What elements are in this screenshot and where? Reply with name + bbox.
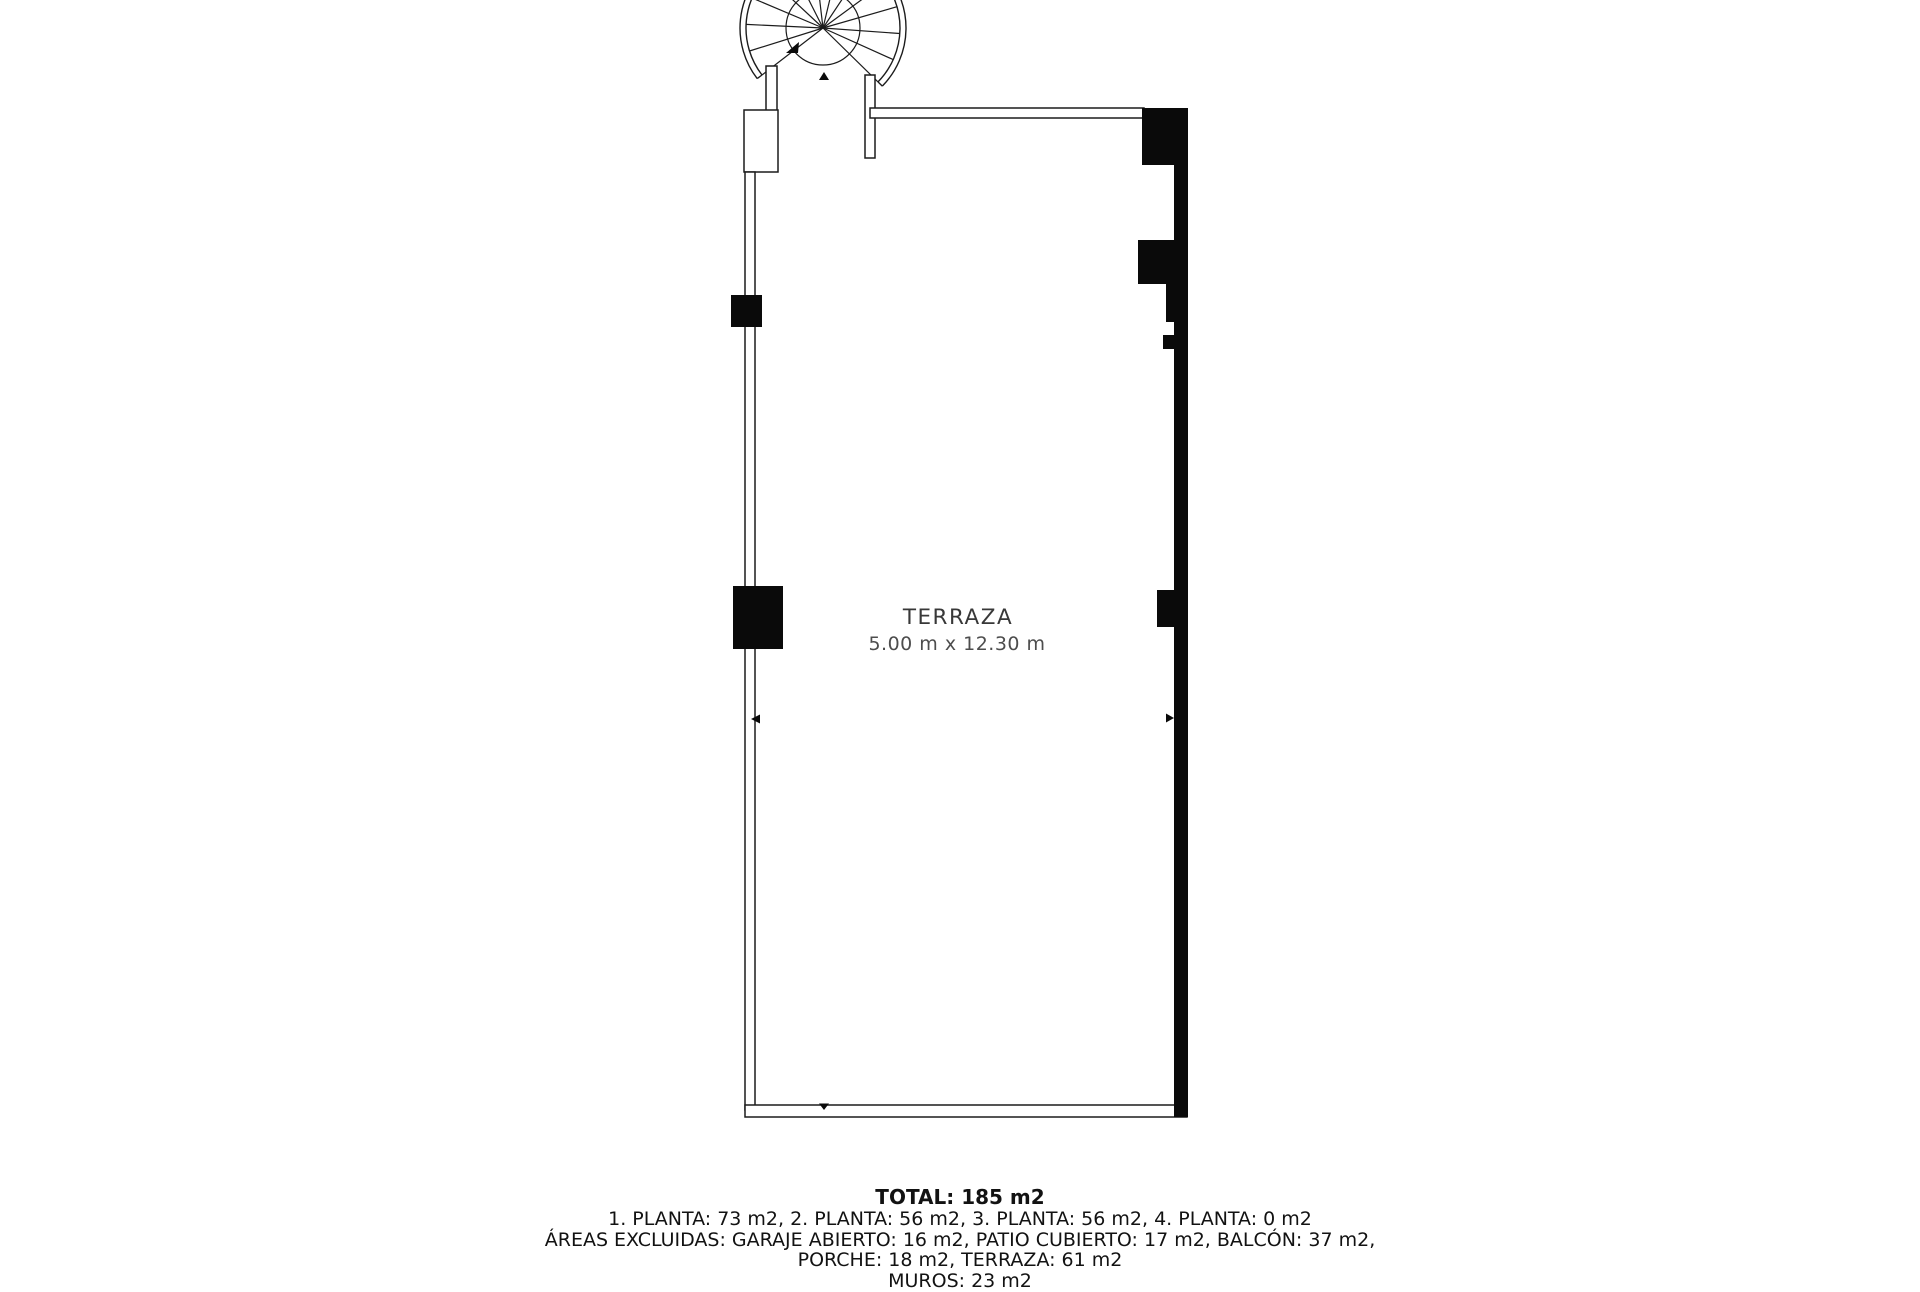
floor-plan-drawing: TERRAZA 5.00 m x 12.30 m — [0, 0, 1920, 1280]
left-wall-column-lower — [733, 586, 783, 649]
summary-line-excluded-areas: ÁREAS EXCLUIDAS: GARAJE ABIERTO: 16 m2, … — [0, 1230, 1920, 1251]
stair-left-wall-stub — [766, 66, 777, 112]
summary-line-plantas: 1. PLANTA: 73 m2, 2. PLANTA: 56 m2, 3. P… — [0, 1209, 1920, 1230]
right-wall-pier-top — [1142, 108, 1188, 165]
summary-total: TOTAL: 185 m2 — [0, 1186, 1920, 1209]
up-direction-arrow-icon — [819, 72, 829, 80]
staircase-direction-arrow-icon — [786, 42, 799, 53]
summary-line-porche-terraza: PORCHE: 18 m2, TERRAZA: 61 m2 — [0, 1250, 1920, 1271]
top-left-pillar — [744, 110, 778, 172]
spiral-staircase — [740, 0, 906, 86]
right-wall-pier-second — [1138, 240, 1188, 284]
room-dimensions: 5.00 m x 12.30 m — [868, 633, 1045, 655]
bottom-wall — [745, 1105, 1187, 1117]
area-summary: TOTAL: 185 m2 1. PLANTA: 73 m2, 2. PLANT… — [0, 1186, 1920, 1291]
outline-walls — [744, 66, 1187, 1117]
left-wall-column-upper — [731, 295, 762, 327]
right-wall-pier-third — [1166, 284, 1188, 322]
floor-plan-page: { "page": { "background": "#ffffff", "li… — [0, 0, 1920, 1280]
right-wall-pier-middle — [1157, 590, 1175, 627]
right-arrow-marker-icon — [1166, 714, 1174, 723]
opening-markers — [751, 714, 1174, 1111]
summary-line-muros: MUROS: 23 m2 — [0, 1271, 1920, 1292]
room-label: TERRAZA — [902, 605, 1013, 630]
right-wall-pier-small — [1163, 335, 1175, 349]
top-wall — [870, 108, 1144, 118]
